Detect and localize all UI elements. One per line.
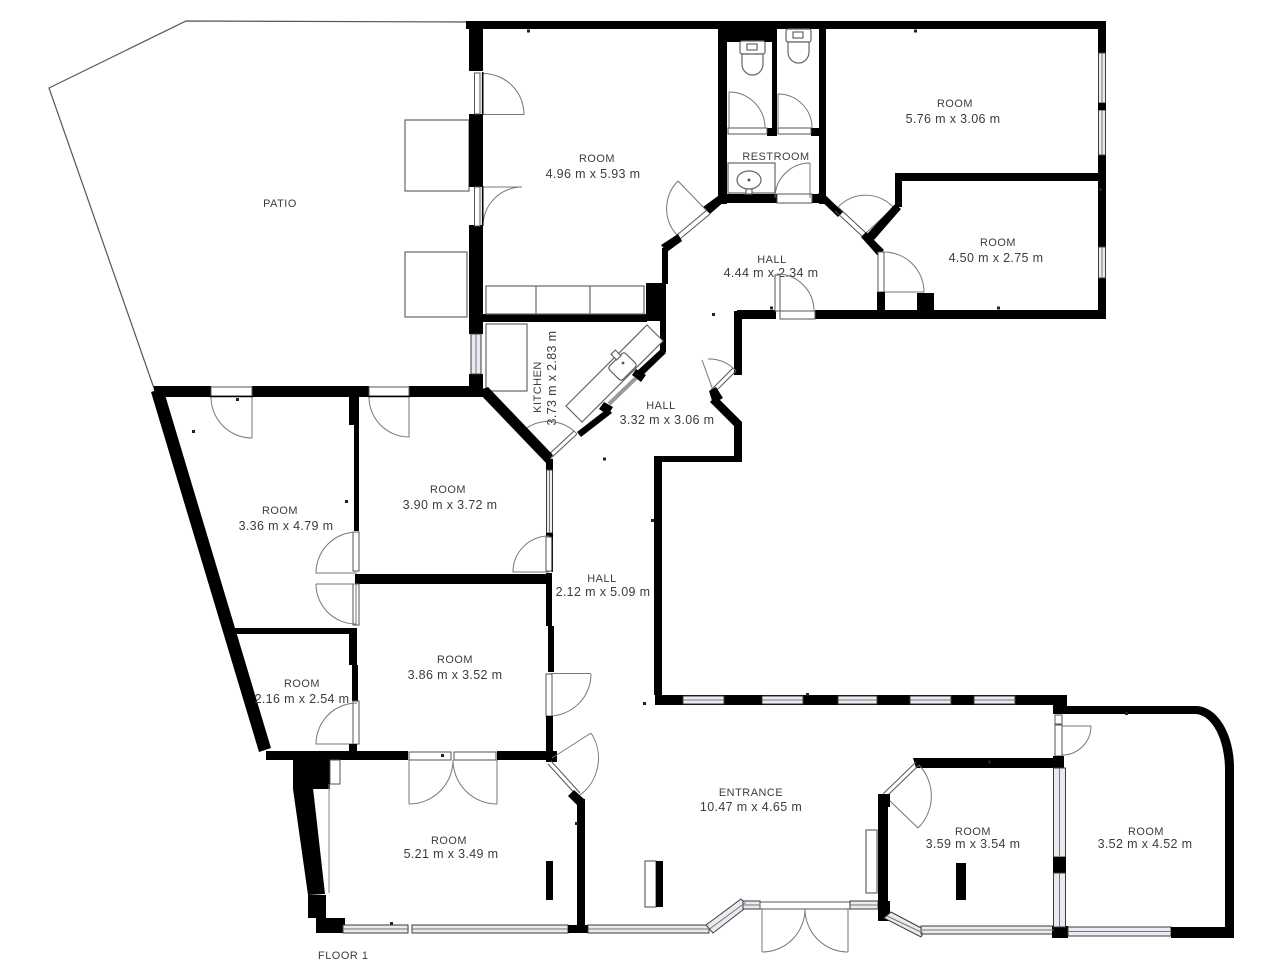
svg-text:3.32 m x 3.06 m: 3.32 m x 3.06 m (620, 413, 715, 427)
svg-text:4.50 m x 2.75 m: 4.50 m x 2.75 m (949, 251, 1044, 265)
svg-text:3.59 m x 3.54 m: 3.59 m x 3.54 m (926, 837, 1021, 851)
svg-text:ROOM: ROOM (430, 484, 466, 496)
svg-text:3.86 m x 3.52 m: 3.86 m x 3.52 m (408, 668, 503, 682)
svg-text:3.73 m x 2.83 m: 3.73 m x 2.83 m (545, 331, 559, 426)
svg-text:3.52 m x 4.52 m: 3.52 m x 4.52 m (1098, 837, 1193, 851)
svg-text:ROOM: ROOM (579, 153, 615, 165)
svg-text:PATIO: PATIO (263, 198, 297, 210)
svg-text:5.76 m x 3.06 m: 5.76 m x 3.06 m (906, 112, 1001, 126)
svg-text:2.12 m x 5.09 m: 2.12 m x 5.09 m (556, 585, 651, 599)
svg-text:ROOM: ROOM (262, 505, 298, 517)
svg-text:2.16 m x 2.54 m: 2.16 m x 2.54 m (255, 692, 350, 706)
svg-text:RESTROOM: RESTROOM (742, 151, 809, 163)
svg-text:ROOM: ROOM (284, 678, 320, 690)
svg-text:FLOOR 1: FLOOR 1 (318, 950, 368, 960)
svg-text:ROOM: ROOM (980, 237, 1016, 249)
svg-text:4.96 m x 5.93 m: 4.96 m x 5.93 m (546, 167, 641, 181)
svg-text:HALL: HALL (587, 573, 616, 585)
svg-text:HALL: HALL (646, 400, 675, 412)
svg-text:ROOM: ROOM (937, 98, 973, 110)
svg-text:ROOM: ROOM (437, 654, 473, 666)
svg-text:3.90 m x 3.72 m: 3.90 m x 3.72 m (403, 498, 498, 512)
svg-text:3.36 m x 4.79 m: 3.36 m x 4.79 m (239, 519, 334, 533)
svg-text:4.44 m x 2.34 m: 4.44 m x 2.34 m (724, 266, 819, 280)
svg-text:ROOM: ROOM (431, 835, 467, 847)
svg-text:KITCHEN: KITCHEN (532, 361, 544, 413)
svg-text:10.47 m x 4.65 m: 10.47 m x 4.65 m (700, 800, 802, 814)
svg-text:HALL: HALL (757, 254, 786, 266)
svg-text:5.21 m x 3.49 m: 5.21 m x 3.49 m (404, 847, 499, 861)
svg-text:ENTRANCE: ENTRANCE (719, 787, 783, 799)
